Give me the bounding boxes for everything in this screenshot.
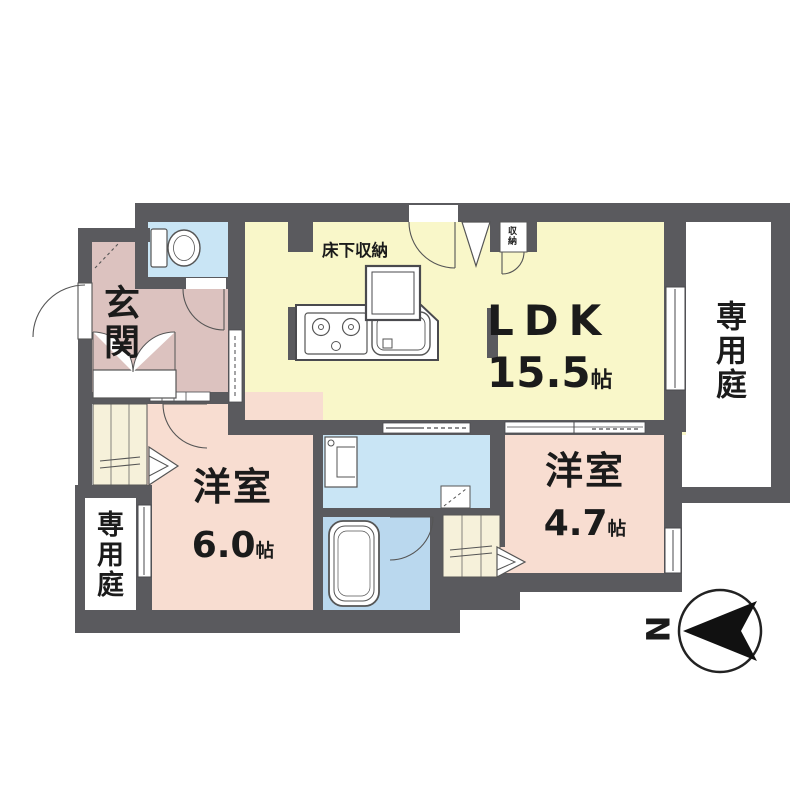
- ldk-label: LDK: [487, 300, 611, 342]
- bedroom-east-area-value: 4.7: [544, 503, 608, 544]
- ldk-top-door-opening: [409, 205, 458, 222]
- entrance-door-arc: [33, 285, 85, 337]
- bedroom-east-label: 洋室: [515, 452, 655, 490]
- compass: [679, 590, 761, 672]
- bedroom-west-label: 洋室: [163, 468, 303, 506]
- burner-icon: [343, 319, 360, 336]
- bedroom-east-area-label: 4.7帖: [515, 506, 655, 542]
- ldk-area-unit: 帖: [591, 368, 613, 393]
- washstand-icon: [325, 437, 357, 487]
- service-hatch: [441, 486, 470, 508]
- floor-storage-label: 床下収納: [322, 243, 388, 260]
- floor-plan-drawing: [0, 0, 800, 800]
- entrance-door-leaf: [78, 283, 92, 339]
- ldk-area-value: 15.5: [487, 348, 591, 397]
- bedroom-east-area-unit: 帖: [608, 519, 627, 540]
- floor-storage-box: [366, 266, 420, 320]
- garden-east-label: 専用庭: [712, 300, 743, 402]
- bedroom-west-area-value: 6.0: [192, 525, 256, 566]
- burner-icon: [332, 342, 341, 351]
- bedroom-west-area-unit: 帖: [256, 541, 275, 562]
- ldk-area-label: 15.5帖: [487, 352, 612, 394]
- toilet-door-opening: [186, 278, 226, 289]
- bathtub-icon: [329, 521, 379, 606]
- garden-west-label: 専用庭: [94, 510, 121, 600]
- bedroom-east-sliding-door: [505, 422, 645, 433]
- toilet-icon: [151, 229, 200, 267]
- bedroom-west-area-label: 6.0帖: [163, 528, 303, 564]
- north-label: N: [642, 616, 674, 643]
- top-closet-label: 収納: [506, 226, 515, 246]
- entrance-label: 玄関: [100, 284, 136, 362]
- floor-plan: LDK 15.5帖 洋室 6.0帖 洋室 4.7帖 玄関 専用庭 専用庭 床下収…: [0, 0, 800, 800]
- burner-icon: [313, 319, 330, 336]
